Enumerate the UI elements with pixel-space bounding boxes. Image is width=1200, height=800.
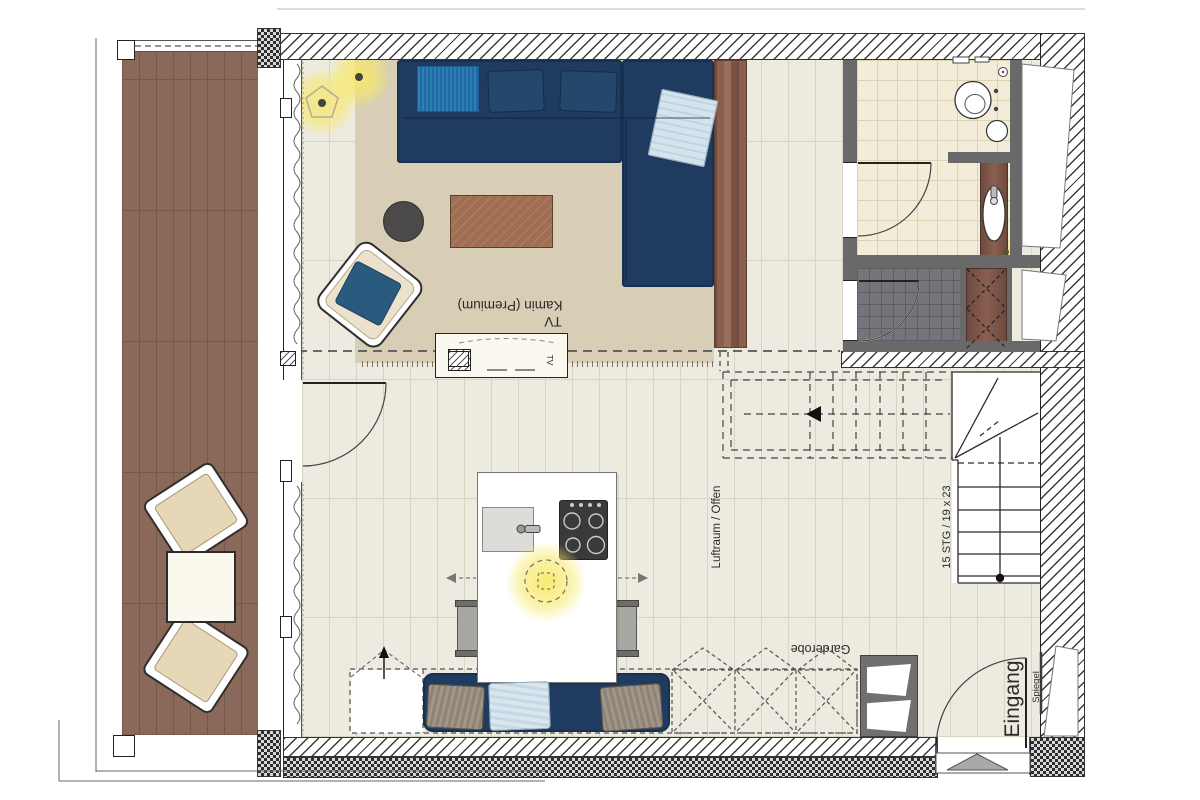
closet-right-strip	[1007, 268, 1012, 350]
dining-chair-left	[457, 604, 479, 654]
label-garderobe: Garderobe	[753, 640, 888, 658]
entrance-threshold	[936, 753, 1030, 773]
sofa-pillow-1	[487, 69, 544, 113]
bath-door-opening	[843, 162, 857, 238]
bath-shower-divider-wall	[843, 255, 1040, 268]
shoe-cabinet-door-top	[867, 664, 911, 696]
label-eingang: Eingang	[1000, 654, 1026, 744]
label-tv-unit: TV	[541, 351, 559, 369]
bottom-exterior-wall	[283, 737, 938, 757]
pendant-lamp-glow	[506, 542, 586, 622]
bottom-right-wall-base	[1030, 737, 1085, 777]
column-2	[448, 351, 469, 367]
window-jamb-2	[280, 460, 292, 482]
wood-partition	[714, 60, 747, 348]
label-spiegel: Spiegel	[1029, 658, 1043, 716]
column-1	[280, 351, 296, 366]
vanity-counter	[980, 162, 1008, 257]
bench-pillow-taupe-2	[600, 683, 664, 732]
deck-column-bottom	[113, 735, 135, 757]
shoe-cabinet	[860, 655, 918, 737]
dining-chair-right	[615, 604, 637, 654]
bench-zone-white	[351, 670, 423, 733]
sofa-pillow-2	[559, 70, 617, 113]
sofa-throw	[417, 66, 479, 112]
bath-wall-right	[1010, 60, 1022, 255]
label-tv: TV	[518, 313, 588, 331]
bottom-wall-base	[283, 757, 938, 778]
stair-floor	[952, 372, 1040, 583]
shower-room-floor	[857, 268, 960, 343]
shower-closet-divider	[960, 268, 966, 343]
deck-rail-strip	[133, 40, 257, 52]
coffee-table	[450, 195, 553, 248]
bath-wall-stub	[948, 152, 1010, 163]
bench-pillow-blue	[488, 681, 551, 731]
bench-pillow-taupe-1	[426, 684, 485, 731]
floor-plan: Kamin (Premium) TV TV Luftraum / Offen 1…	[0, 0, 1200, 800]
shoe-cabinet-door-bottom	[867, 700, 911, 732]
bath-wall-bottom	[843, 341, 1040, 352]
window-wall-lower	[283, 482, 302, 737]
pier-top	[257, 28, 281, 68]
top-exterior-wall	[277, 33, 1085, 60]
label-stairs: 15 STG / 19 x 23	[938, 472, 956, 582]
shower-door-opening	[843, 280, 857, 341]
bath-wall-left-upper	[843, 60, 857, 162]
bath-closet	[966, 268, 1007, 350]
window-jamb-3	[280, 616, 292, 638]
deck-column-top	[117, 40, 135, 60]
right-exterior-wall	[1040, 33, 1085, 745]
pier-bottom	[257, 730, 281, 777]
side-table-round	[383, 201, 424, 242]
window-jamb-1	[280, 98, 292, 118]
label-luftraum: Luftraum / Offen	[707, 472, 727, 582]
mid-wall-under-bath	[841, 351, 1085, 368]
island-sink	[482, 507, 534, 552]
deck-table	[166, 551, 236, 623]
